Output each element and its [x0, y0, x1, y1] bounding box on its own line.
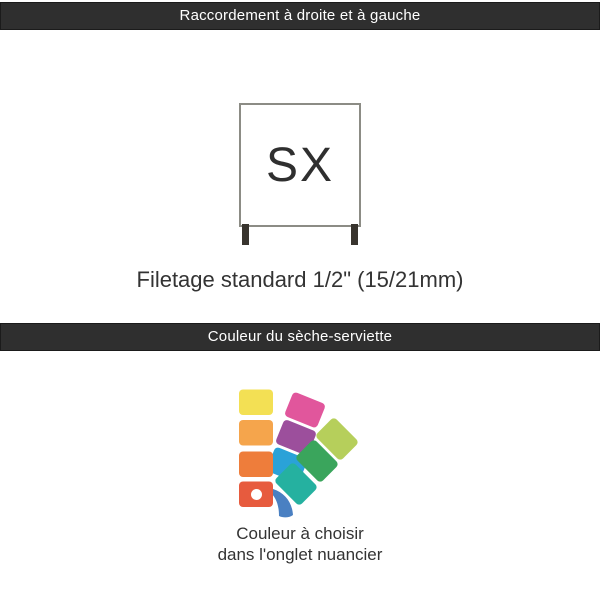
swatch-strip-front	[239, 390, 273, 508]
sx-connection-diagram: SX	[239, 103, 361, 227]
swatch-ring-hole	[251, 489, 262, 500]
swatch-light-orange	[239, 420, 273, 446]
section-header-couleur-label: Couleur du sèche-serviette	[208, 328, 392, 345]
product-options-panel: Raccordement à droite et à gauche SX Fil…	[0, 0, 600, 600]
color-choice-caption-line1: Couleur à choisir	[0, 523, 600, 544]
thread-standard-caption: Filetage standard 1/2" (15/21mm)	[0, 267, 600, 293]
color-choice-caption: Couleur à choisir dans l'onglet nuancier	[0, 523, 600, 565]
sx-model-label: SX	[266, 138, 334, 193]
section-header-raccordement: Raccordement à droite et à gauche	[0, 2, 600, 30]
swatch-orange	[239, 452, 273, 478]
diagram-left-leg	[242, 224, 249, 245]
diagram-right-leg	[351, 224, 358, 245]
section-header-couleur: Couleur du sèche-serviette	[0, 323, 600, 351]
color-choice-caption-line2: dans l'onglet nuancier	[0, 544, 600, 565]
swatch-yellow	[239, 390, 273, 416]
section-header-raccordement-label: Raccordement à droite et à gauche	[180, 7, 421, 24]
color-swatch-fan-icon	[236, 386, 368, 518]
